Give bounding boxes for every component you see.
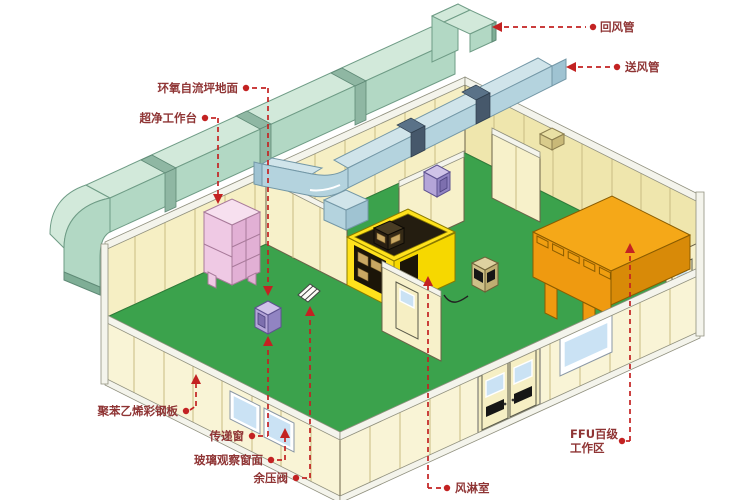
clean-bench xyxy=(204,199,260,288)
callout-dot xyxy=(183,408,189,414)
callout-dot xyxy=(268,457,274,463)
label-ffu-line2: 工作区 xyxy=(570,441,605,455)
label-epoxy-floor: 环氧自流坪地面 xyxy=(158,81,239,95)
label-glass-window: 玻璃观察窗面 xyxy=(194,453,263,467)
label-steel-panel: 聚苯乙烯彩钢板 xyxy=(97,404,179,418)
transfer-window-box xyxy=(255,301,281,334)
label-return-air-duct: 回风管 xyxy=(600,20,635,34)
callout-dot xyxy=(614,64,620,70)
label-supply-air-duct: 送风管 xyxy=(624,60,660,74)
west-corner-post xyxy=(101,244,108,384)
arrow-left-icon xyxy=(566,62,576,72)
return-duct-riser xyxy=(432,4,496,62)
callout-return-air-duct: 回风管 xyxy=(492,20,635,34)
diagram-canvas: 回风管 送风管 环氧自流坪地面 超净工作台 聚苯乙烯彩钢板 传递窗 玻璃观察窗 xyxy=(0,0,752,500)
equipment-cabinet xyxy=(472,257,498,292)
label-pressure-valve: 余压阀 xyxy=(253,471,289,485)
label-transfer-window: 传递窗 xyxy=(209,429,245,443)
callout-dot xyxy=(249,433,255,439)
supply-duct-open-end xyxy=(552,59,566,86)
cleanroom-isometric-diagram: 回风管 送风管 环氧自流坪地面 超净工作台 聚苯乙烯彩钢板 传递窗 玻璃观察窗 xyxy=(0,0,752,500)
label-ffu-line1: FFU百级 xyxy=(570,427,619,441)
label-air-shower: 风淋室 xyxy=(455,481,490,495)
pass-box-on-wall xyxy=(424,165,450,197)
callout-dot xyxy=(243,85,249,91)
callout-dot xyxy=(444,485,450,491)
callout-dot xyxy=(590,24,596,30)
east-corner-post xyxy=(696,192,704,336)
label-clean-bench: 超净工作台 xyxy=(139,111,198,125)
callout-dot xyxy=(293,475,299,481)
callout-dot xyxy=(202,115,208,121)
callout-dot xyxy=(619,438,625,444)
callout-supply-air-duct: 送风管 xyxy=(566,60,660,74)
